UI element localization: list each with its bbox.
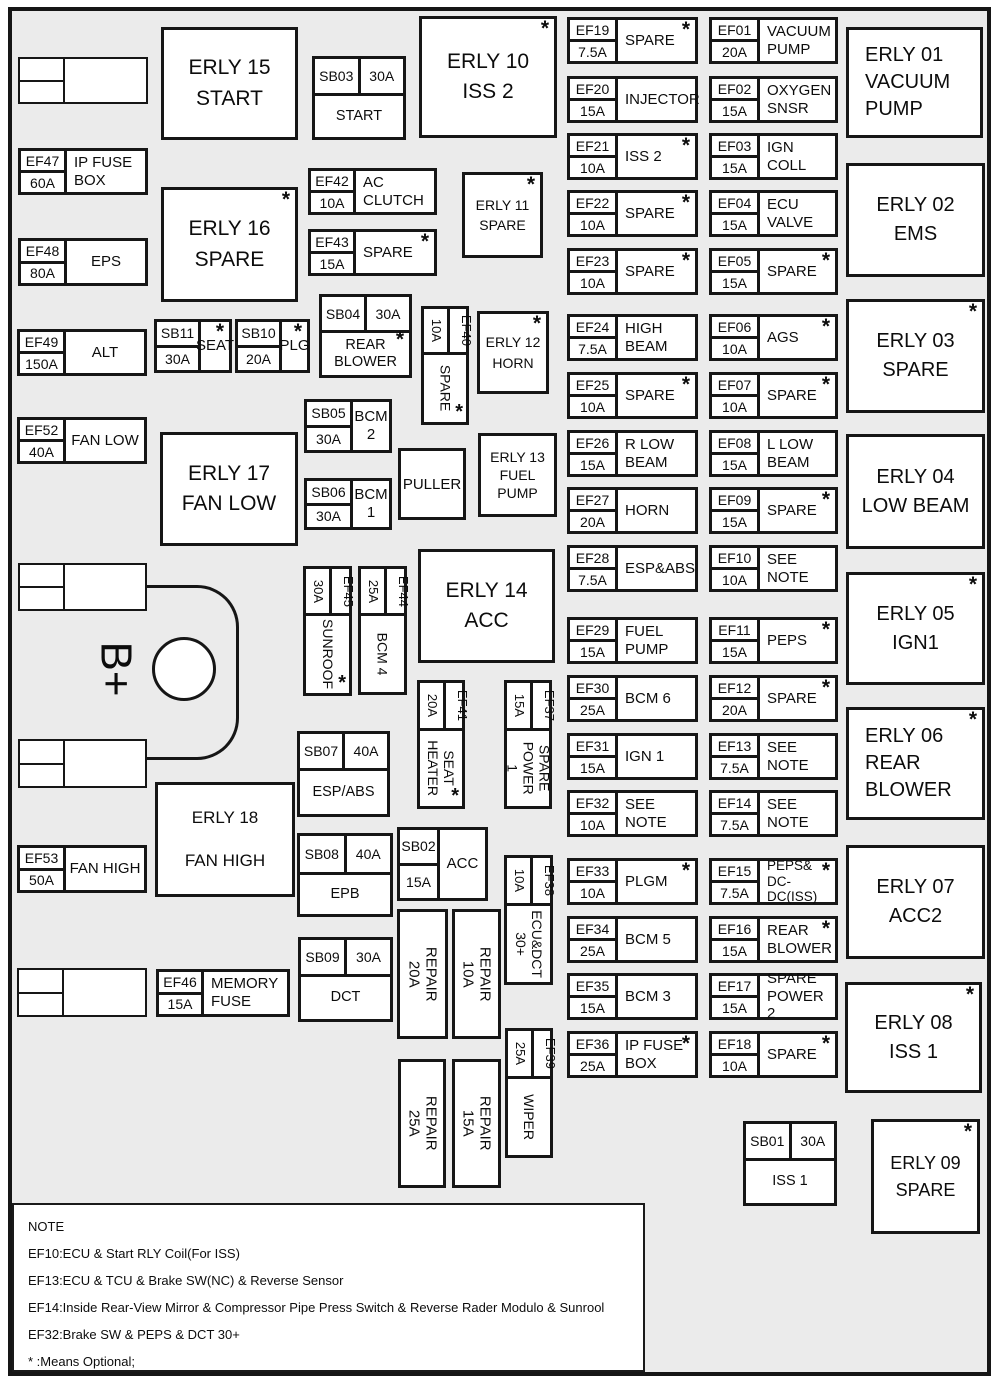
fuse-sb06: SB0630ABCM 1 xyxy=(304,478,392,530)
fuse-ef45: 30AEF45SUNROOF* xyxy=(303,566,352,696)
connector-cell xyxy=(20,765,63,787)
optional-asterisk: * xyxy=(527,174,535,195)
fuse-label: EPS xyxy=(67,241,145,283)
fuse-ef49: EF49150AALT xyxy=(17,329,147,376)
connector-cells xyxy=(20,59,65,102)
optional-asterisk: * xyxy=(822,489,830,510)
fuse-code: EF18 xyxy=(712,1034,757,1056)
fuse-code: SB05 xyxy=(307,402,350,428)
fuse-ef02: EF0215AOXYGENSNSR xyxy=(709,76,838,123)
fuse-code-amp: EF0915A xyxy=(712,490,760,531)
repair-fuse-20a: REPAIR 20A xyxy=(397,909,448,1039)
fuse-sb07: SB0740AESP/ABS xyxy=(297,731,390,817)
fuse-ef10: EF1010ASEE NOTE xyxy=(709,545,838,592)
fuse-label: ALT xyxy=(66,332,144,373)
relay-erly-10: ERLY 10ISS 2* xyxy=(419,16,557,138)
fuse-code: EF39 xyxy=(534,1031,565,1076)
fuse-amp: 15A xyxy=(712,642,757,661)
relay-erly-13: ERLY 13FUELPUMP xyxy=(478,433,557,517)
optional-asterisk: * xyxy=(682,250,690,271)
fuse-code: EF27 xyxy=(570,490,615,512)
fuse-amp: 25A xyxy=(570,700,615,719)
relay-erly-12: ERLY 12HORN* xyxy=(477,311,549,394)
fuse-puller: PULLER xyxy=(398,448,466,520)
relay-erly-14: ERLY 14ACC xyxy=(418,549,555,663)
fuse-label: IP FUSEBOX xyxy=(67,151,145,192)
relay-erly-02: ERLY 02EMS xyxy=(846,163,985,277)
fuse-code: SB07 xyxy=(300,734,345,768)
fuse-label: INJECTOR xyxy=(618,79,695,120)
fuse-amp: 20A xyxy=(570,512,615,531)
fuse-label: DCT xyxy=(301,977,390,1019)
fuse-code: EF46 xyxy=(159,972,201,995)
fuse-ef19: EF197.5ASPARE* xyxy=(567,17,698,64)
fuse-code-amp: EF287.5A xyxy=(570,548,618,589)
note-title: NOTE xyxy=(28,1213,643,1240)
relay-erly-17: ERLY 17FAN LOW xyxy=(160,432,298,546)
fuse-code: EF25 xyxy=(570,375,615,397)
fuse-code: SB11 xyxy=(157,322,198,348)
fuse-code: EF23 xyxy=(570,251,615,273)
fuse-amp: 15A xyxy=(570,998,615,1017)
fuse-code-amp: EF2720A xyxy=(570,490,618,531)
fuse-label: SEE NOTE xyxy=(760,793,835,834)
battery-terminal-label: B+ xyxy=(92,640,140,698)
fuse-ef20: EF2015AINJECTOR xyxy=(567,76,698,123)
fuse-ef41: 20AEF41SEAT HEATER* xyxy=(417,680,465,809)
fuse-code-amp: EF1810A xyxy=(712,1034,760,1075)
fuse-ef03: EF0315AIGN COLL xyxy=(709,133,838,180)
sb-header: SB0130A xyxy=(746,1124,834,1161)
connector-cell xyxy=(20,741,63,765)
fuse-code-amp: EF3625A xyxy=(570,1034,618,1075)
fuse-label: BCM 6 xyxy=(618,678,695,719)
fuse-amp: 30A xyxy=(361,59,404,93)
fuse-ef28: EF287.5AESP&ABS xyxy=(567,545,698,592)
fuse-code-amp: EF0215A xyxy=(712,79,760,120)
repair-fuse-15a: REPAIR 15A xyxy=(452,1059,501,1188)
fuse-code-amp: EF247.5A xyxy=(570,317,618,358)
fuse-amp: 15A xyxy=(712,998,757,1017)
fuse-amp: 20A xyxy=(712,42,757,61)
connector-block xyxy=(17,968,147,1017)
optional-asterisk: * xyxy=(822,250,830,271)
relay-erly-03: ERLY 03SPARE* xyxy=(846,299,985,413)
fuse-code: EF02 xyxy=(712,79,757,101)
fuse-amp: 15A xyxy=(570,455,615,474)
fuse-code-amp: EF0815A xyxy=(712,433,760,474)
fuse-code: EF43 xyxy=(311,232,353,254)
fuse-ef16: EF1615AREARBLOWER* xyxy=(709,916,838,963)
fuse-code-amp: EF3425A xyxy=(570,919,618,960)
fuse-code-amp: EF0515A xyxy=(712,251,760,292)
battery-post-circle xyxy=(152,637,216,701)
relay-erly-05: ERLY 05IGN1* xyxy=(846,572,985,685)
fuse-amp: 15A xyxy=(712,101,757,120)
fuse-code-amp: EF0415A xyxy=(712,193,760,234)
fuse-code-amp: EF5240A xyxy=(20,420,66,461)
fuse-label: SEE NOTE xyxy=(618,793,695,834)
fuse-amp: 30A xyxy=(347,940,390,974)
fuse-label: EPB xyxy=(300,875,390,914)
fuse-amp: 10A xyxy=(570,815,615,834)
connector-cell xyxy=(20,588,63,609)
fuse-label: START xyxy=(315,96,403,137)
fuse-amp: 10A xyxy=(712,1056,757,1075)
fuse-ef35: EF3515ABCM 3 xyxy=(567,973,698,1020)
fuse-code-amp: EF2615A xyxy=(570,433,618,474)
fuse-code: EF19 xyxy=(570,20,615,42)
fuse-code: SB09 xyxy=(301,940,347,974)
fuse-label: R LOWBEAM xyxy=(618,433,695,474)
fuse-code-amp: EF2510A xyxy=(570,375,618,416)
fuse-ef18: EF1810ASPARE* xyxy=(709,1031,838,1078)
optional-asterisk: * xyxy=(421,231,429,252)
fuse-amp: 7.5A xyxy=(570,42,615,61)
optional-asterisk: * xyxy=(682,860,690,881)
fuse-label: ESP/ABS xyxy=(300,771,387,814)
fuse-amp: 25A xyxy=(570,1056,615,1075)
fuse-code: EF03 xyxy=(712,136,757,158)
fuse-label: OXYGENSNSR xyxy=(760,79,835,120)
fuse-amp: 10A xyxy=(712,570,757,589)
fuse-code-amp: EF2915A xyxy=(570,620,618,661)
note-line-ef13: EF13:ECU & TCU & Brake SW(NC) & Reverse … xyxy=(28,1267,643,1294)
fuse-amp: 10A xyxy=(570,883,615,902)
fuse-code: EF34 xyxy=(570,919,615,941)
fuse-label: WIPER xyxy=(508,1079,550,1155)
fuse-code-amp: EF1115A xyxy=(712,620,760,661)
optional-asterisk: * xyxy=(216,321,224,342)
optional-asterisk: * xyxy=(822,374,830,395)
fuse-code-amp: EF4760A xyxy=(21,151,67,192)
fuse-ef26: EF2615AR LOWBEAM xyxy=(567,430,698,477)
fuse-amp: 10A xyxy=(570,397,615,416)
fuse-code: SB08 xyxy=(300,836,347,872)
fuse-ef30: EF3025ABCM 6 xyxy=(567,675,698,722)
relay-erly-09: ERLY 09SPARE* xyxy=(871,1119,980,1234)
fuse-code-amp: EF4615A xyxy=(159,972,204,1014)
fuse-ef32: EF3210ASEE NOTE xyxy=(567,790,698,837)
fuse-v-header: 25AEF44 xyxy=(361,569,404,616)
fuse-code-amp: EF147.5A xyxy=(712,793,760,834)
note-line-ef10: EF10:ECU & Start RLY Coil(For ISS) xyxy=(28,1240,643,1267)
optional-asterisk: * xyxy=(822,619,830,640)
fuse-code: EF33 xyxy=(570,861,615,883)
fuse-code: EF24 xyxy=(570,317,615,339)
fuse-code: EF31 xyxy=(570,736,615,758)
relay-erly-06: ERLY 06REARBLOWER* xyxy=(846,707,985,820)
fuse-ef01: EF0120AVACUUMPUMP xyxy=(709,17,838,64)
fuse-code-amp: EF157.5A xyxy=(712,861,760,902)
optional-asterisk: * xyxy=(964,1121,972,1142)
fuse-code-amp: EF2310A xyxy=(570,251,618,292)
fuse-code: EF26 xyxy=(570,433,615,455)
sb-header: SB0740A xyxy=(300,734,387,771)
fuse-ef22: EF2210ASPARE* xyxy=(567,190,698,237)
optional-asterisk: * xyxy=(451,786,459,806)
fuse-code: EF37 xyxy=(533,683,564,728)
fuse-v-header: 10AEF40 xyxy=(424,309,466,355)
fuse-code-amp: EF3025A xyxy=(570,678,618,719)
fuse-ef33: EF3310APLGM* xyxy=(567,858,698,905)
fuse-ef37: 15AEF37SPARE POWER 1 xyxy=(504,680,552,809)
fuse-code: SB06 xyxy=(307,481,350,506)
fuse-ef17: EF1715ASPAREPOWER 2 xyxy=(709,973,838,1020)
optional-asterisk: * xyxy=(682,374,690,395)
optional-asterisk: * xyxy=(822,677,830,698)
fuse-code: EF15 xyxy=(712,861,757,883)
fuse-amp: 20A xyxy=(712,700,757,719)
fuse-amp: 20A xyxy=(238,348,279,371)
sb-header: SB0330A xyxy=(315,59,403,96)
fuse-ef43: EF4315ASPARE* xyxy=(308,229,437,276)
note-line-optional: * :Means Optional; xyxy=(28,1348,643,1375)
sb-header: SB0930A xyxy=(301,940,390,977)
fuse-code: EF48 xyxy=(21,241,64,264)
fuse-label: SEE NOTE xyxy=(760,548,835,589)
fuse-ef39: 25AEF39WIPER xyxy=(505,1028,553,1158)
fuse-code: EF06 xyxy=(712,317,757,339)
fuse-code: EF05 xyxy=(712,251,757,273)
fuse-sb01: SB0130AISS 1 xyxy=(743,1121,837,1206)
fuse-label: MEMORYFUSE xyxy=(204,972,287,1014)
fuse-amp: 30A xyxy=(367,297,409,330)
connector-cells xyxy=(19,970,64,1015)
fuse-v-header: 25AEF39 xyxy=(508,1031,550,1079)
fuse-code: SB01 xyxy=(746,1124,792,1158)
fuse-code: EF28 xyxy=(570,548,615,570)
fuse-code: EF29 xyxy=(570,620,615,642)
fuse-amp: 40A xyxy=(347,836,391,872)
fuse-code: EF30 xyxy=(570,678,615,700)
fuse-amp: 15A xyxy=(570,101,615,120)
fuse-amp: 7.5A xyxy=(570,570,615,589)
repair-fuse-10a: REPAIR 10A xyxy=(452,909,501,1039)
fuse-ef09: EF0915ASPARE* xyxy=(709,487,838,534)
fuse-amp: 10A xyxy=(424,309,450,352)
fuse-v-header: 30AEF45 xyxy=(306,569,349,616)
fuse-amp: 40A xyxy=(345,734,387,768)
fuse-ef05: EF0515ASPARE* xyxy=(709,248,838,295)
note-line-ef32: EF32:Brake SW & PEPS & DCT 30+ xyxy=(28,1321,643,1348)
connector-cell xyxy=(20,59,63,82)
fuse-code: EF41 xyxy=(446,683,477,728)
fuse-sb11: SB1130ASEAT* xyxy=(154,319,232,373)
fuse-amp: 40A xyxy=(20,442,63,461)
optional-asterisk: * xyxy=(338,673,346,693)
fuse-code: EF07 xyxy=(712,375,757,397)
fuse-label: ECU&DCT 30+ xyxy=(507,906,550,982)
optional-asterisk: * xyxy=(682,19,690,40)
note-panel: NOTE EF10:ECU & Start RLY Coil(For ISS) … xyxy=(12,1203,645,1372)
optional-asterisk: * xyxy=(969,574,977,595)
optional-asterisk: * xyxy=(966,984,974,1005)
fuse-sb03: SB0330ASTART xyxy=(312,56,406,140)
fuse-code-amp: EF197.5A xyxy=(570,20,618,61)
fuse-ef24: EF247.5AHIGHBEAM xyxy=(567,314,698,361)
fuse-ef12: EF1220ASPARE* xyxy=(709,675,838,722)
connector-cells xyxy=(20,741,65,786)
fuse-label: BCM 1 xyxy=(353,481,389,527)
optional-asterisk: * xyxy=(282,189,290,210)
fuse-label: ACC xyxy=(440,830,485,898)
fuse-amp: 10A xyxy=(712,339,757,358)
connector-block xyxy=(18,563,147,611)
relay-erly-01: ERLY 01VACUUMPUMP xyxy=(846,27,983,138)
fuse-code: EF10 xyxy=(712,548,757,570)
optional-asterisk: * xyxy=(294,321,302,342)
fuse-code: EF49 xyxy=(20,332,63,354)
fuse-v-header: 20AEF41 xyxy=(420,683,462,731)
fuse-ef07: EF0710ASPARE* xyxy=(709,372,838,419)
fuse-amp: 15A xyxy=(159,995,201,1015)
fuse-code: EF42 xyxy=(311,171,353,193)
fuse-code: EF47 xyxy=(21,151,64,173)
fuse-label: SPAREPOWER 2 xyxy=(760,976,835,1017)
fuse-label: BCM 5 xyxy=(618,919,695,960)
connector-block xyxy=(18,57,148,104)
fuse-code: EF22 xyxy=(570,193,615,215)
fuse-ef31: EF3115AIGN 1 xyxy=(567,733,698,780)
fuse-ef42: EF4210AAC CLUTCH xyxy=(308,168,437,215)
optional-asterisk: * xyxy=(541,18,549,39)
fuse-code-amp: EF3310A xyxy=(570,861,618,902)
optional-asterisk: * xyxy=(682,192,690,213)
fuse-label: ESP&ABS xyxy=(618,548,695,589)
fuse-sb05: SB0530ABCM 2 xyxy=(304,399,392,453)
optional-asterisk: * xyxy=(822,860,830,881)
fuse-ef06: EF0610AAGS* xyxy=(709,314,838,361)
fuse-amp: 15A xyxy=(712,941,757,960)
fuse-amp: 25A xyxy=(570,941,615,960)
fuse-code-amp: EF4210A xyxy=(311,171,356,212)
fuse-ef13: EF137.5ASEE NOTE xyxy=(709,733,838,780)
fuse-code-amp: SB1020A xyxy=(238,322,282,370)
fuse-amp: 10A xyxy=(570,273,615,292)
fuse-code: EF44 xyxy=(387,569,418,613)
fuse-code-amp: SB1130A xyxy=(157,322,201,370)
fuse-label: FAN LOW xyxy=(66,420,144,461)
relay-erly-04: ERLY 04LOW BEAM xyxy=(846,434,985,549)
fuse-code: EF12 xyxy=(712,678,757,700)
fuse-code-amp: EF137.5A xyxy=(712,736,760,777)
relay-erly-18: ERLY 18FAN HIGH xyxy=(155,782,295,897)
fuse-v-header: 15AEF37 xyxy=(507,683,549,731)
optional-asterisk: * xyxy=(822,316,830,337)
fuse-code-amp: SB0215A xyxy=(400,830,440,898)
optional-asterisk: * xyxy=(455,402,463,422)
fuse-label: SEE NOTE xyxy=(760,736,835,777)
fuse-code-amp: EF3115A xyxy=(570,736,618,777)
fuse-amp: 7.5A xyxy=(570,339,615,358)
fuse-ef14: EF147.5ASEE NOTE xyxy=(709,790,838,837)
fuse-sb09: SB0930ADCT xyxy=(298,937,393,1022)
fuse-amp: 30A xyxy=(307,428,350,451)
fuse-ef34: EF3425ABCM 5 xyxy=(567,916,698,963)
fuse-label: SPARE POWER 1 xyxy=(507,731,549,806)
fuse-label: AC CLUTCH xyxy=(356,171,434,212)
connector-cells xyxy=(20,565,65,609)
fuse-amp: 80A xyxy=(21,264,64,284)
fuse-amp: 25A xyxy=(508,1031,534,1076)
fuse-code: EF38 xyxy=(533,858,564,903)
fuse-amp: 15A xyxy=(712,158,757,177)
fuse-amp: 10A xyxy=(712,397,757,416)
fuse-code: EF36 xyxy=(570,1034,615,1056)
fuse-amp: 15A xyxy=(712,455,757,474)
connector-cell xyxy=(19,994,62,1016)
connector-block xyxy=(18,739,147,788)
connector-cell xyxy=(19,970,62,994)
fuse-code: EF40 xyxy=(450,309,481,352)
fuse-code-amp: EF0710A xyxy=(712,375,760,416)
fuse-label: L LOWBEAM xyxy=(760,433,835,474)
fuse-label: ISS 1 xyxy=(746,1161,834,1203)
fuse-label: VACUUMPUMP xyxy=(760,20,835,61)
fuse-amp: 7.5A xyxy=(712,758,757,777)
fuse-code-amp: EF2015A xyxy=(570,79,618,120)
fuse-ef40: 10AEF40SPARE* xyxy=(421,306,469,425)
fuse-ef36: EF3625AIP FUSEBOX* xyxy=(567,1031,698,1078)
fuse-label: BCM 3 xyxy=(618,976,695,1017)
fuse-code-amp: EF3515A xyxy=(570,976,618,1017)
fuse-amp: 15A xyxy=(570,642,615,661)
fuse-label: BCM 2 xyxy=(353,402,389,450)
fuse-code-amp: SB0630A xyxy=(307,481,353,527)
fuse-ef21: EF2110AISS 2* xyxy=(567,133,698,180)
optional-asterisk: * xyxy=(822,918,830,939)
repair-fuse-25a: REPAIR 25A xyxy=(398,1059,446,1188)
relay-erly-11: ERLY 11SPARE* xyxy=(462,172,543,258)
fuse-code: EF01 xyxy=(712,20,757,42)
fuse-code-amp: EF4880A xyxy=(21,241,67,283)
optional-asterisk: * xyxy=(969,709,977,730)
fuse-ef29: EF2915AFUELPUMP xyxy=(567,617,698,664)
fuse-amp: 7.5A xyxy=(712,815,757,834)
fuse-code-amp: EF3210A xyxy=(570,793,618,834)
fuse-amp: 10A xyxy=(507,858,533,903)
fuse-amp: 60A xyxy=(21,173,64,192)
fuse-code-amp: EF49150A xyxy=(20,332,66,373)
fuse-ef15: EF157.5APEPS&DC-DC(ISS)* xyxy=(709,858,838,905)
fuse-ef27: EF2720AHORN xyxy=(567,487,698,534)
fuse-amp: 10A xyxy=(311,193,353,212)
fuse-code: EF53 xyxy=(20,848,63,871)
fuse-code-amp: EF4315A xyxy=(311,232,356,273)
fuse-code-amp: EF0120A xyxy=(712,20,760,61)
fuse-code: EF09 xyxy=(712,490,757,512)
fuse-code: EF13 xyxy=(712,736,757,758)
fuse-sb04: SB0430AREARBLOWER* xyxy=(319,294,412,378)
fuse-ef38: 10AEF38ECU&DCT 30+ xyxy=(504,855,553,985)
optional-asterisk: * xyxy=(533,313,541,334)
fuse-code: EF11 xyxy=(712,620,757,642)
fuse-label: HIGHBEAM xyxy=(618,317,695,358)
fuse-amp: 7.5A xyxy=(712,883,757,902)
fuse-amp: 50A xyxy=(20,871,63,891)
fuse-ef11: EF1115APEPS* xyxy=(709,617,838,664)
fuse-ef52: EF5240AFAN LOW xyxy=(17,417,147,464)
connector-cell xyxy=(20,565,63,588)
fuse-code-amp: EF5350A xyxy=(20,848,66,890)
optional-asterisk: * xyxy=(396,329,404,350)
fuse-amp: 30A xyxy=(792,1124,835,1158)
fuse-code-amp: EF0610A xyxy=(712,317,760,358)
fuse-label: FAN HIGH xyxy=(66,848,144,890)
engine-fuse-box-diagram: NOTE EF10:ECU & Start RLY Coil(For ISS) … xyxy=(0,0,1000,1383)
sb-header: SB0840A xyxy=(300,836,390,875)
